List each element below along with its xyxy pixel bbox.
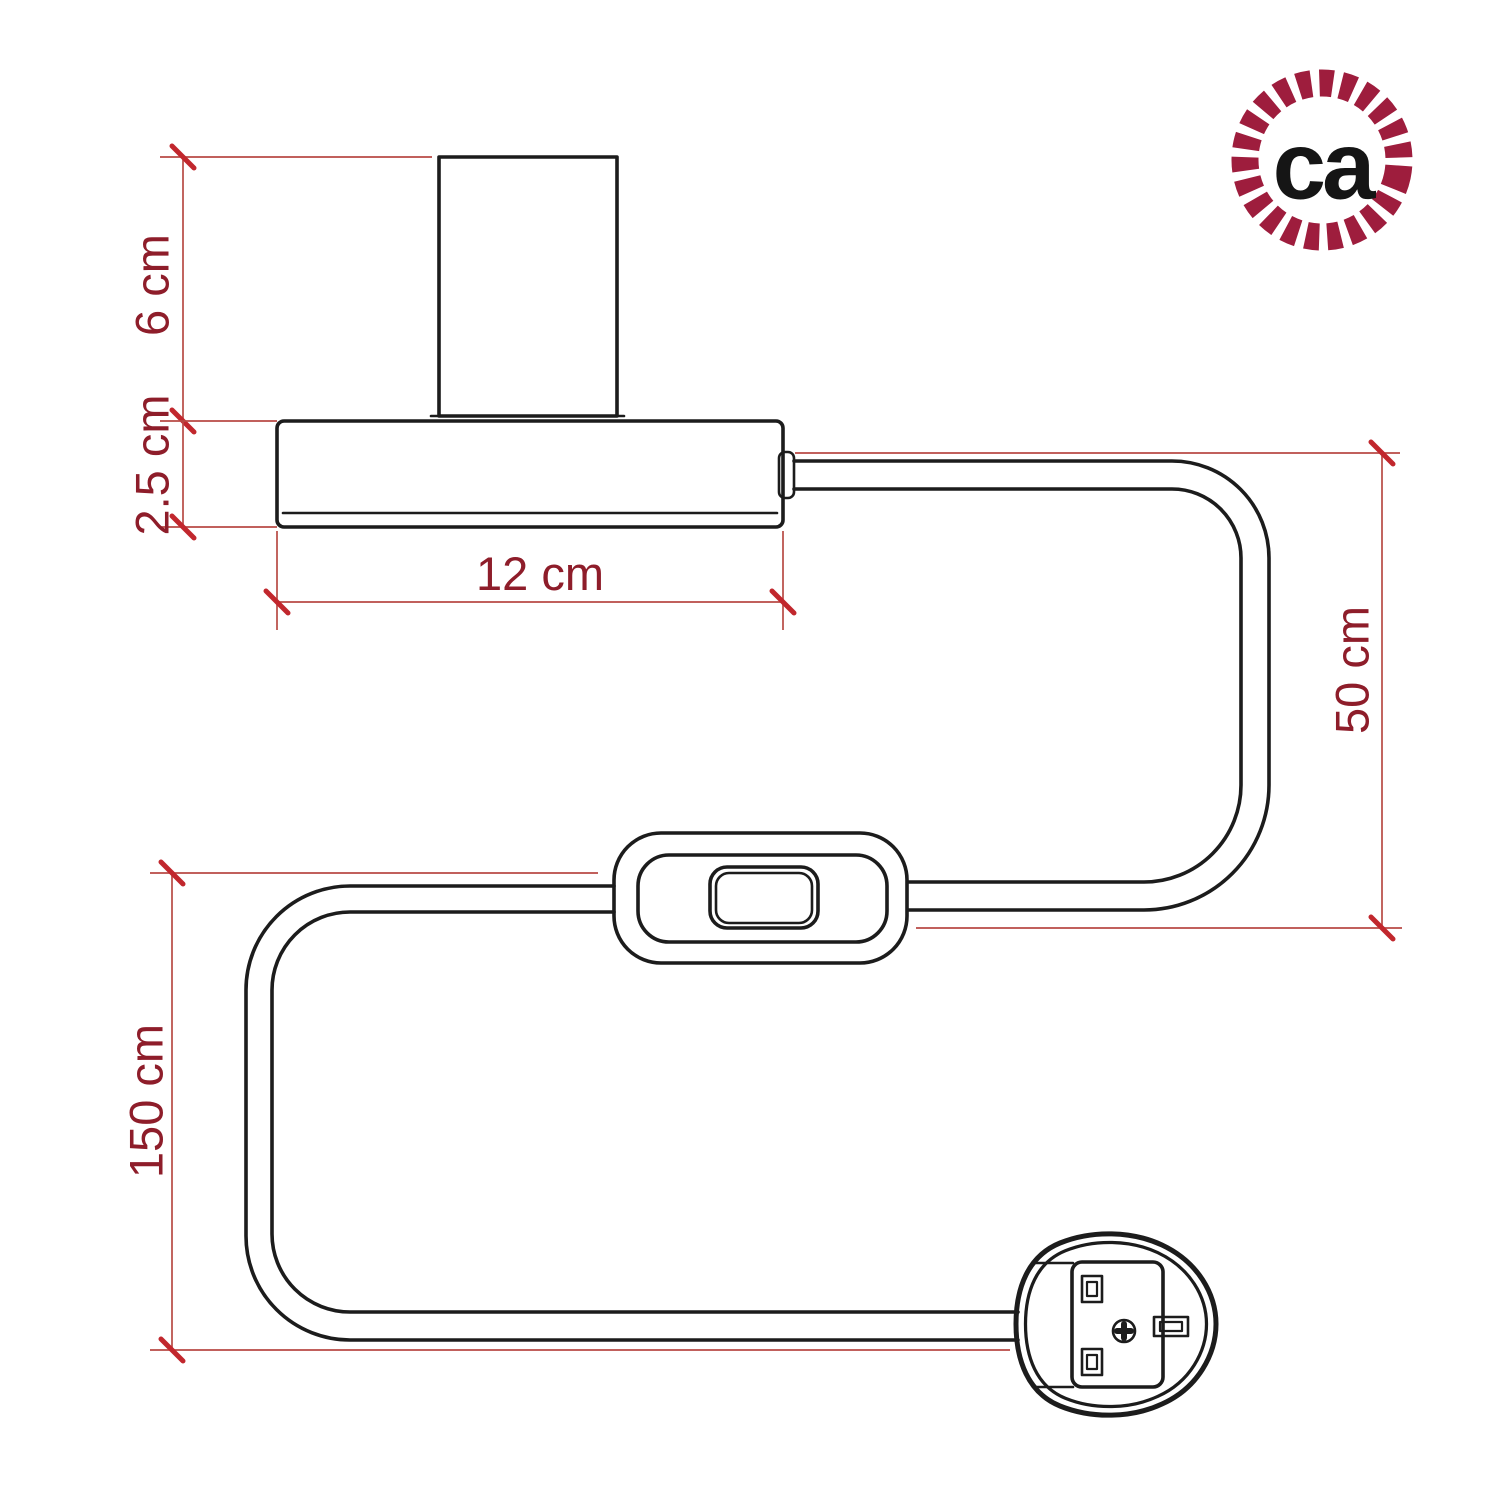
switch-button xyxy=(710,867,818,928)
dimension-label-switch-distance: 50 cm xyxy=(1326,606,1379,734)
dimension-label-base-height: 2.5 cm xyxy=(126,394,179,535)
dim-switch-distance: 50 cm xyxy=(795,442,1402,939)
plug-slot-right xyxy=(1154,1317,1188,1336)
cable-upper-run xyxy=(794,461,1269,910)
slot-inner xyxy=(1087,1355,1097,1369)
cable-edge xyxy=(794,461,1269,910)
brand-logo: ca xyxy=(1231,69,1414,252)
inline-switch xyxy=(614,833,907,963)
switch-button-outer xyxy=(710,867,818,928)
slot-outer xyxy=(1082,1276,1102,1302)
technical-drawing-page: 6 cm 2.5 cm 12 cm 50 cm xyxy=(0,0,1500,1500)
logo-text: ca xyxy=(1273,113,1376,220)
dim-base-width: 12 cm xyxy=(266,531,794,630)
slot-outer xyxy=(1082,1349,1102,1375)
lamp-socket-tube xyxy=(439,157,617,416)
dim-total-length: 150 cm xyxy=(120,862,1011,1361)
cable-edge xyxy=(794,489,1241,882)
dim-base-height: 2.5 cm xyxy=(126,394,278,538)
switch-button-inner xyxy=(716,873,812,923)
plug-slot-bottom xyxy=(1082,1349,1102,1375)
dimension-annotations: 6 cm 2.5 cm 12 cm 50 cm xyxy=(120,146,1403,1361)
slot-inner xyxy=(1087,1282,1097,1296)
dim-socket-height: 6 cm xyxy=(126,146,433,432)
lamp-dimension-diagram: 6 cm 2.5 cm 12 cm 50 cm xyxy=(0,0,1500,1500)
dimension-label-socket-height: 6 cm xyxy=(126,234,179,336)
plug-face-plate xyxy=(1072,1262,1163,1387)
dimension-label-total-length: 150 cm xyxy=(120,1024,173,1178)
uk-plug xyxy=(1016,1234,1216,1415)
dimension-label-base-width: 12 cm xyxy=(476,547,604,600)
lamp-base xyxy=(277,421,783,527)
plug-screw xyxy=(1113,1320,1135,1342)
plug-slot-top xyxy=(1082,1276,1102,1302)
lamp-holder xyxy=(277,157,794,527)
cable-edge xyxy=(272,912,1018,1312)
